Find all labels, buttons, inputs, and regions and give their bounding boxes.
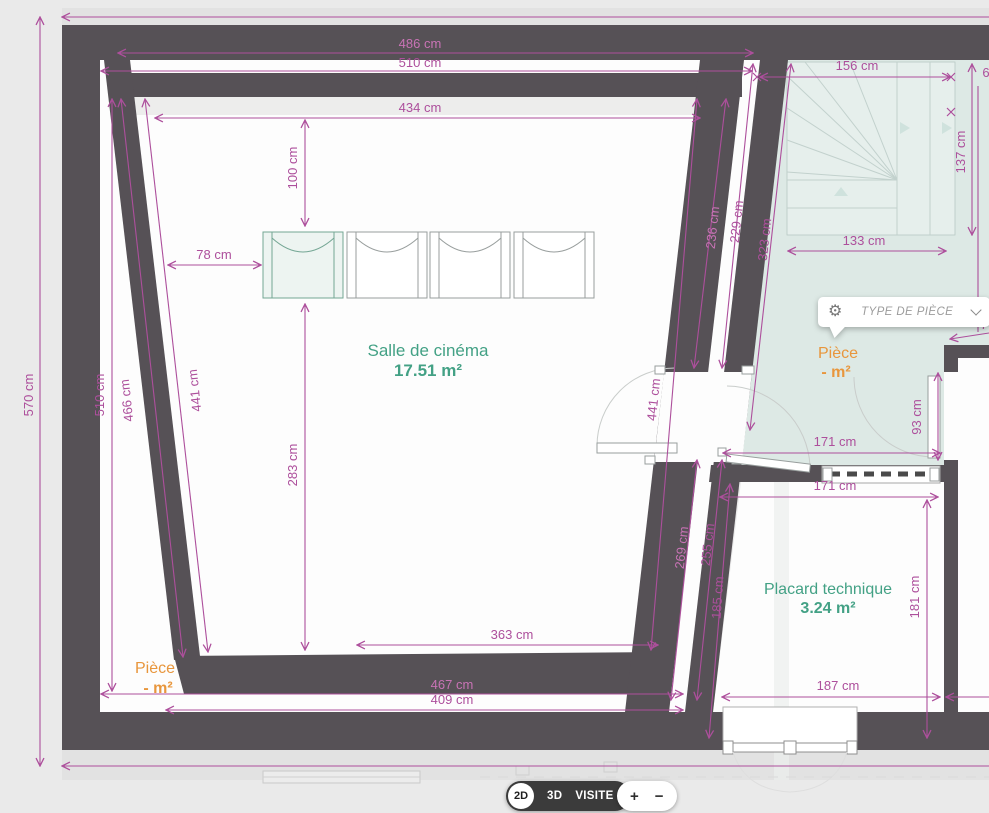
dim-label: 283 cm xyxy=(285,444,300,487)
room-label-sliver[interactable]: Pièce xyxy=(135,660,175,677)
dim-label: 486 cm xyxy=(399,36,442,51)
staircase[interactable] xyxy=(787,62,955,235)
cinema-seat[interactable] xyxy=(430,232,510,298)
cinema-seat[interactable] xyxy=(514,232,594,298)
chevron-down-icon[interactable] xyxy=(970,304,981,315)
room-area-hall: - m² xyxy=(821,364,850,381)
room-label-hall[interactable]: Pièce xyxy=(818,345,858,362)
cinema-seat[interactable] xyxy=(347,232,427,298)
view-mode-toolbar[interactable]: 2D 3D VISITE xyxy=(506,781,630,811)
dim-label: 181 cm xyxy=(907,576,922,619)
dim-label: 467 cm xyxy=(431,677,474,692)
room-area-sliver: - m² xyxy=(143,680,172,697)
dim-label: 171 cm xyxy=(814,434,857,449)
floorplan-canvas[interactable]: 570 cm 486 cm 510 cm 434 cm 100 cm 78 cm… xyxy=(0,0,989,813)
dim-label: 187 cm xyxy=(817,678,860,693)
dim-label: 78 cm xyxy=(196,247,231,262)
dim-label: 100 cm xyxy=(285,147,300,190)
dim-label: 93 cm xyxy=(909,399,924,434)
dim-label: 185 cm xyxy=(709,576,727,620)
mode-3d-button[interactable]: 3D xyxy=(547,790,562,802)
dim-label: 137 cm xyxy=(953,131,968,174)
room-right-floor[interactable] xyxy=(958,358,989,712)
zoom-in-button[interactable]: + xyxy=(630,789,639,804)
dim-label: 6 xyxy=(982,65,989,80)
room-type-popup[interactable]: ⚙ TYPE DE PIÈCE xyxy=(818,297,989,327)
dim-label: 363 cm xyxy=(491,627,534,642)
mode-2d-button[interactable]: 2D xyxy=(508,783,534,809)
dim-label: 409 cm xyxy=(431,692,474,707)
dim-label: 510 cm xyxy=(92,374,107,417)
room-type-dropdown-label[interactable]: TYPE DE PIÈCE xyxy=(850,306,964,318)
room-type-dropdown[interactable]: ⚙ TYPE DE PIÈCE xyxy=(818,297,989,327)
cinema-seat-selected[interactable] xyxy=(263,232,343,298)
dim-label: 570 cm xyxy=(21,374,36,417)
gear-icon[interactable]: ⚙ xyxy=(828,304,842,320)
room-label-cinema[interactable]: Salle de cinéma xyxy=(368,341,490,360)
zoom-toolbar[interactable]: + − xyxy=(617,781,677,811)
dim-label: 171 cm xyxy=(814,478,857,493)
room-area-placard: 3.24 m² xyxy=(800,600,855,617)
room-label-placard[interactable]: Placard technique xyxy=(764,581,892,598)
dim-label: 133 cm xyxy=(843,233,886,248)
visite-button[interactable]: VISITE xyxy=(575,790,613,802)
dim-label: 156 cm xyxy=(836,58,879,73)
dim-label: 510 cm xyxy=(399,55,442,70)
zoom-out-button[interactable]: − xyxy=(655,789,664,804)
dim-label: 434 cm xyxy=(399,100,442,115)
room-area-cinema: 17.51 m² xyxy=(394,361,462,380)
